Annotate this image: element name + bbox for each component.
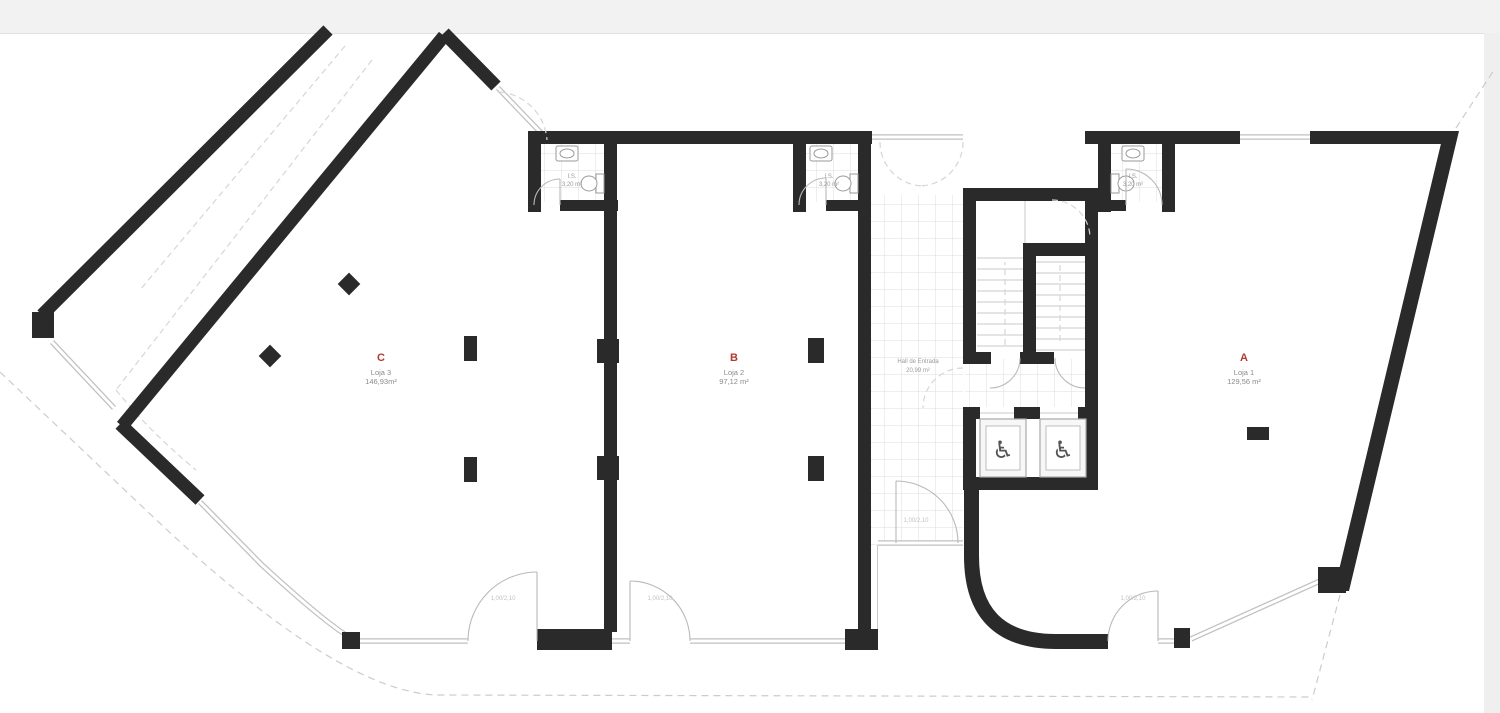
svg-text:3,20 m²: 3,20 m² bbox=[1123, 182, 1143, 188]
svg-text:C: C bbox=[377, 352, 385, 364]
wheelchair-icon: ♿ bbox=[1052, 436, 1074, 464]
svg-text:3,20 m²: 3,20 m² bbox=[819, 182, 839, 188]
elevators: ♿ ♿ bbox=[980, 413, 1086, 477]
svg-text:20,99 m²: 20,99 m² bbox=[906, 368, 930, 374]
svg-text:97,12 m²: 97,12 m² bbox=[719, 377, 749, 386]
door-label: 1,00/2,10 bbox=[647, 596, 673, 602]
svg-text:B: B bbox=[730, 352, 738, 364]
svg-text:I.S.: I.S. bbox=[567, 174, 576, 180]
svg-text:129,56 m²: 129,56 m² bbox=[1227, 377, 1261, 386]
walls bbox=[32, 30, 1459, 650]
svg-text:A: A bbox=[1240, 352, 1248, 364]
floor-plan: ♿ ♿ bbox=[0, 0, 1500, 713]
svg-text:Loja 3: Loja 3 bbox=[371, 368, 391, 377]
svg-text:3,20 m²: 3,20 m² bbox=[562, 182, 582, 188]
door-label: 1,00/2,10 bbox=[1120, 596, 1146, 602]
columns bbox=[259, 273, 1269, 649]
svg-text:I.S.: I.S. bbox=[824, 174, 833, 180]
svg-text:Hall de Entrada: Hall de Entrada bbox=[897, 359, 939, 365]
wheelchair-icon: ♿ bbox=[992, 436, 1014, 464]
unit-c-label: C Loja 3 146,93m² bbox=[365, 352, 397, 386]
door-label: 1,00/2,10 bbox=[903, 518, 929, 524]
svg-text:146,93m²: 146,93m² bbox=[365, 377, 397, 386]
unit-b-label: B Loja 2 97,12 m² bbox=[719, 352, 749, 386]
svg-text:Loja 1: Loja 1 bbox=[1234, 368, 1254, 377]
door-label: 1,00/2,10 bbox=[490, 596, 516, 602]
svg-text:I.S.: I.S. bbox=[1128, 174, 1137, 180]
labels: C Loja 3 146,93m² B Loja 2 97,12 m² A Lo… bbox=[365, 174, 1261, 602]
svg-text:Loja 2: Loja 2 bbox=[724, 368, 744, 377]
floor-plan-viewer: ♿ ♿ bbox=[0, 0, 1500, 713]
unit-a-label: A Loja 1 129,56 m² bbox=[1227, 352, 1261, 386]
